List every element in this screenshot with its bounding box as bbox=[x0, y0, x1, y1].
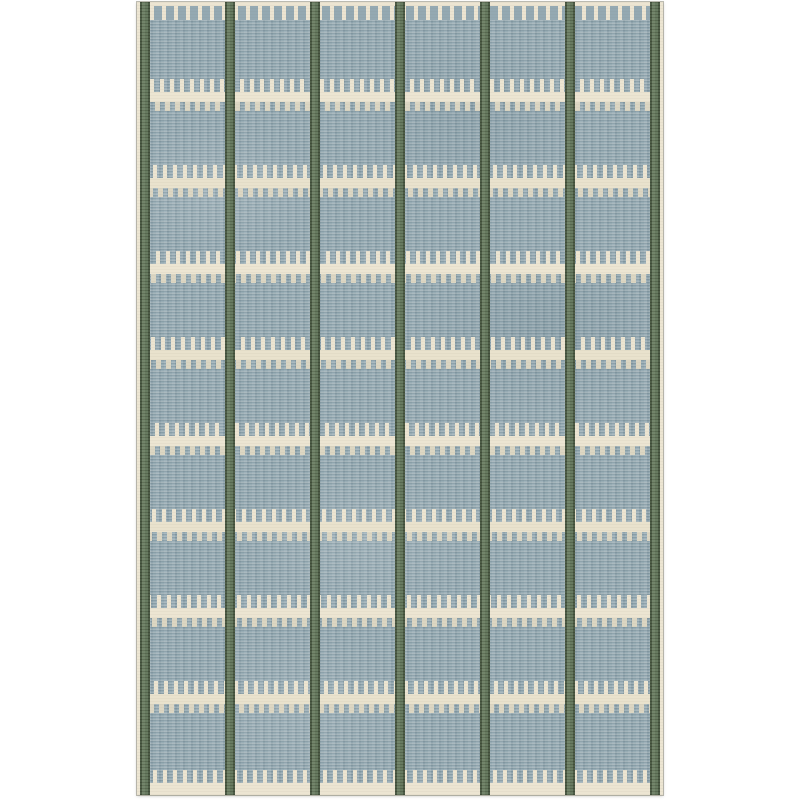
green-pinstripe bbox=[650, 2, 660, 795]
green-pinstripe bbox=[480, 2, 490, 795]
green-pinstripe bbox=[310, 2, 320, 795]
green-pinstripe bbox=[225, 2, 235, 795]
green-pinstripe bbox=[140, 2, 150, 795]
green-pinstripe bbox=[565, 2, 575, 795]
green-pinstripe bbox=[395, 2, 405, 795]
rug-image bbox=[137, 2, 663, 795]
page-background bbox=[0, 0, 800, 800]
